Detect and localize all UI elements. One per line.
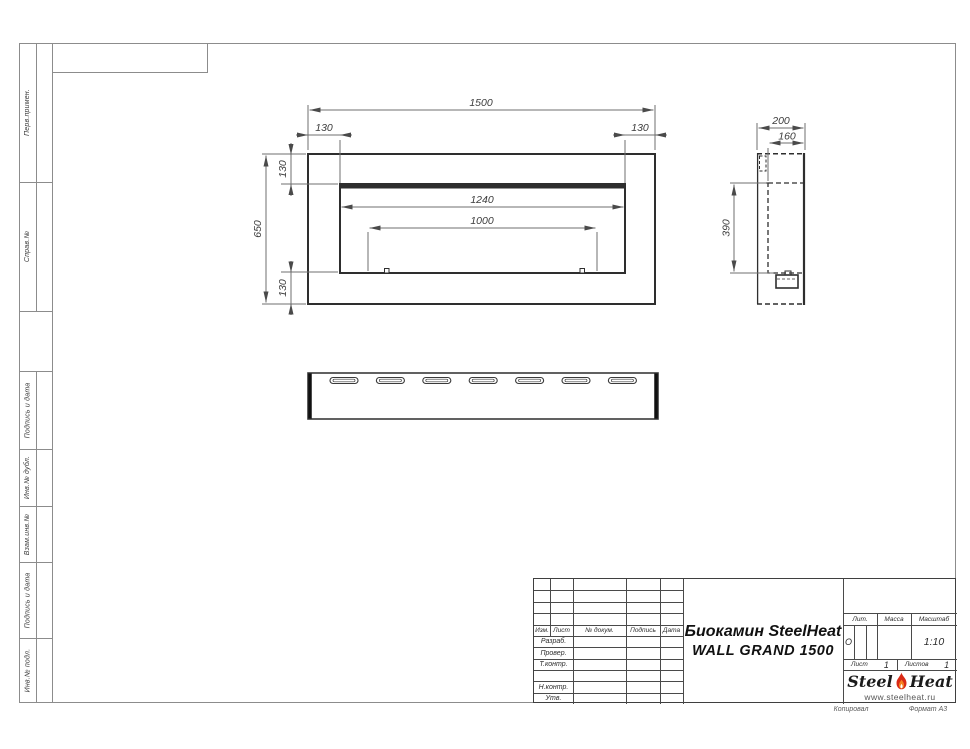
burner-slot-inners [333, 379, 633, 382]
burner-pin-right [580, 269, 585, 274]
side-view [757, 153, 805, 305]
tb-lit-value: О [843, 625, 854, 659]
tb-header-list: Лист [550, 625, 573, 636]
logo-text-heat: Heat [910, 674, 953, 690]
tb-row-nkontr: Н.контр. [534, 681, 573, 693]
dim-front-opening-width: 1240 [470, 194, 494, 206]
tb-line [866, 625, 867, 659]
tb-row-razrab: Разраб. [534, 636, 573, 647]
tb-massa-label: Масса [877, 613, 911, 625]
document-title-line2: WALL GRAND 1500 [692, 642, 834, 660]
dim-front-inset-left: 130 [315, 122, 333, 134]
tb-masshtab-value: 1:10 [911, 625, 957, 659]
tb-header-doc: № докум. [573, 625, 626, 636]
tb-line [534, 602, 683, 603]
tb-lit-label: Лит. [843, 613, 877, 625]
tb-header-izm: Изм. [534, 625, 550, 636]
title-block: Изм. Лист № докум. Подпись Дата Разраб. … [533, 578, 956, 703]
tb-line [626, 579, 627, 704]
mount-bracket [760, 156, 767, 171]
tb-header-podpis: Подпись [626, 625, 660, 636]
company-logo: Steel Heat www.steelheat.ru [843, 670, 957, 704]
burner-slots [330, 378, 636, 384]
tb-line [534, 670, 683, 671]
tb-line [660, 579, 661, 704]
dim-front-width: 1500 [469, 97, 493, 109]
footer-kopiroval: Копировал [816, 706, 886, 713]
tb-line [854, 625, 855, 659]
document-title-line1: Биокамин SteelHeat [685, 622, 842, 642]
tb-list-cell: Лист 1 [843, 659, 897, 670]
dim-side-depth: 200 [771, 115, 790, 127]
tb-listov-label: Листов [905, 661, 929, 668]
logo-website: www.steelheat.ru [864, 692, 935, 702]
tb-row-tkontr: Т.контр. [534, 659, 573, 670]
tb-row-utv: Утв. [534, 693, 573, 704]
footer-format: Формат А3 [900, 706, 956, 713]
top-view [308, 373, 658, 419]
dim-side-inner-depth: 160 [778, 131, 796, 143]
flame-icon [894, 672, 909, 691]
dim-front-burner-width: 1000 [470, 215, 494, 227]
dim-front-inset-right: 130 [631, 122, 649, 134]
logo-text-steel: Steel [847, 674, 892, 690]
tb-listov-cell: Листов 1 [897, 659, 957, 670]
tb-line [534, 590, 683, 591]
burner-pin-left [385, 269, 390, 274]
dim-front-inset-bottom: 130 [277, 279, 289, 297]
drawing-sheet: Перв.примен. Справ.№ Подпись и дата Инв.… [0, 0, 970, 749]
front-view [308, 154, 655, 304]
tb-line [534, 613, 683, 614]
tb-list-value: 1 [884, 660, 889, 670]
tb-listov-value: 1 [944, 660, 949, 670]
logo-wordmark: Steel Heat [847, 672, 952, 691]
tb-row-prover: Провер. [534, 647, 573, 659]
tb-line [573, 579, 574, 704]
tb-list-label: Лист [851, 661, 868, 668]
tb-masshtab-label: Масштаб [911, 613, 957, 625]
dim-front-height: 650 [252, 220, 264, 238]
document-title: Биокамин SteelHeat WALL GRAND 1500 [683, 579, 843, 704]
dim-front-inset-top: 130 [277, 160, 289, 178]
fuel-block [776, 275, 798, 288]
dim-side-opening-height: 390 [721, 219, 733, 237]
tb-header-data: Дата [660, 625, 683, 636]
